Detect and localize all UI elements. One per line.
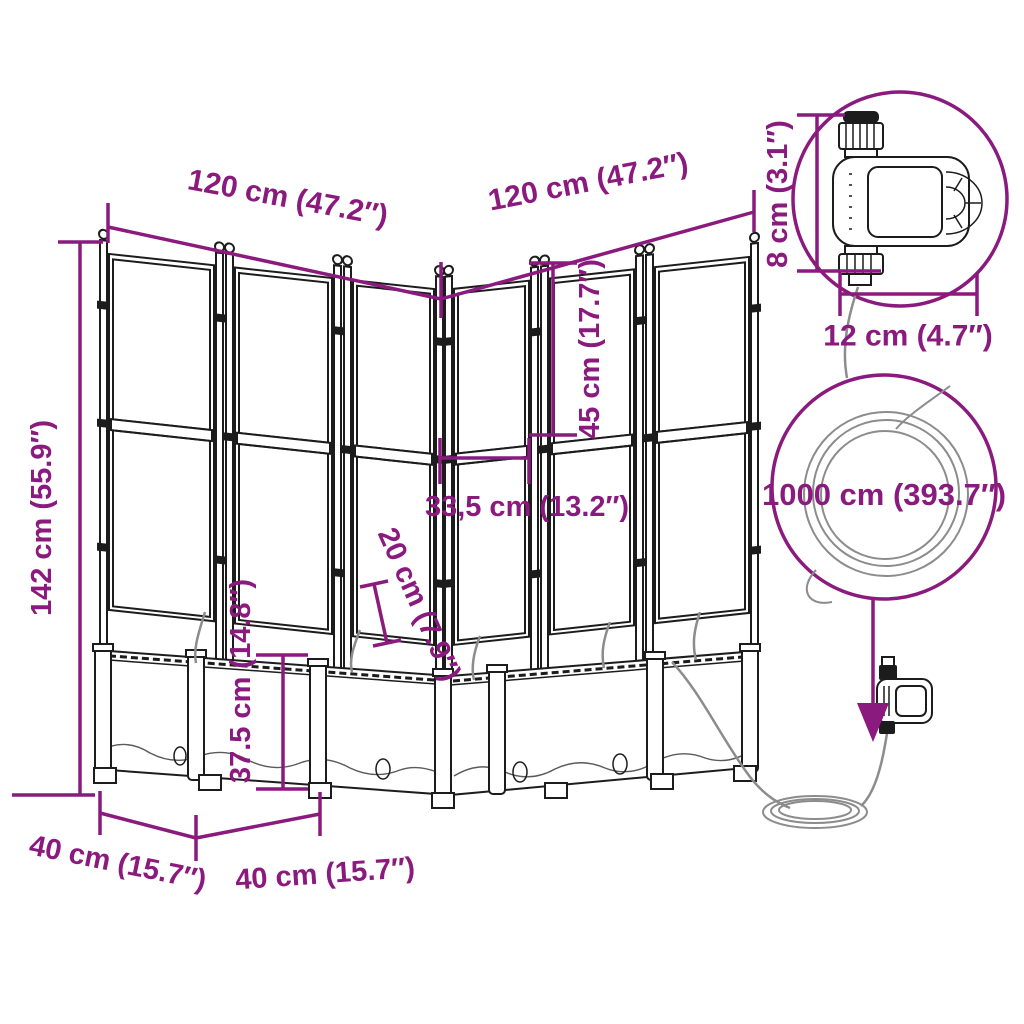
label-section-width: 33,5 cm (13.2″) <box>425 491 629 523</box>
planter-dimension-diagram: 120 cm (47.2″) 120 cm (47.2″) 142 cm (55… <box>0 0 1024 1024</box>
label-width-left: 120 cm (47.2″) <box>185 163 390 232</box>
label-planter-height: 37.5 cm (14.8″) <box>225 579 257 783</box>
label-upper-trellis-height: 45 cm (17.7″) <box>574 259 606 439</box>
label-hose-length: 1000 cm (393.7″) <box>762 477 1006 512</box>
label-total-height: 142 cm (55.9″) <box>26 420 58 616</box>
label-timer-height: 8 cm (3.1″) <box>762 120 794 268</box>
trellis-left-wing <box>97 229 446 697</box>
label-timer-width: 12 cm (4.7″) <box>823 320 992 353</box>
water-timer-detail <box>833 111 982 285</box>
label-depth-front: 40 cm (15.7″) <box>234 852 416 896</box>
water-timer-small <box>877 657 932 734</box>
label-depth-left: 40 cm (15.7″) <box>26 830 209 897</box>
label-width-right: 120 cm (47.2″) <box>485 146 690 217</box>
hose-coil <box>763 796 867 828</box>
planter-base <box>93 644 760 808</box>
trellis-panels-left <box>109 254 434 645</box>
diagram-page: 120 cm (47.2″) 120 cm (47.2″) 142 cm (55… <box>0 0 1024 1024</box>
